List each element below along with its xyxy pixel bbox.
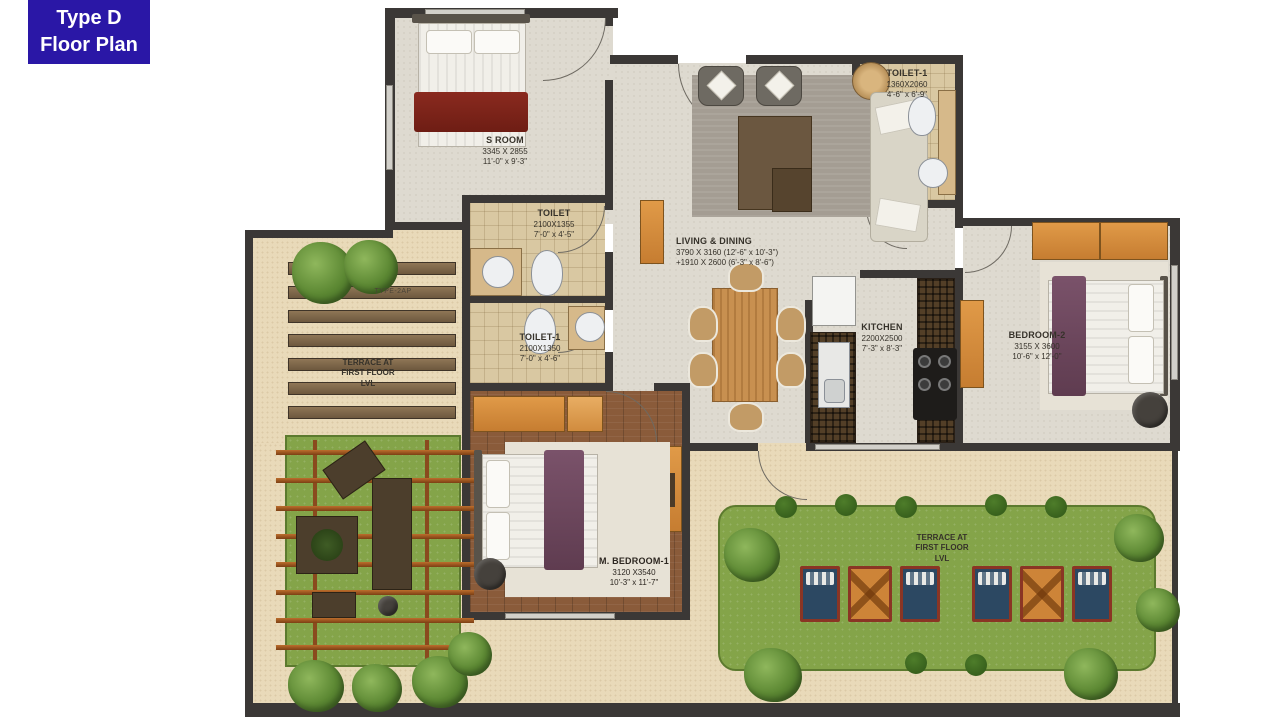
pillow [486, 460, 510, 508]
wall [462, 383, 610, 391]
terrace-label-line: LVL [316, 379, 420, 389]
pergola-beam [276, 590, 474, 595]
wall [955, 55, 963, 218]
tree [724, 528, 780, 582]
pergola-beam [276, 618, 474, 623]
plan-title-line2: Floor Plan [28, 32, 150, 59]
toilet1-mid-label: TOILET-1 2100X1350 7'-0" x 4'-6" [492, 332, 588, 364]
terrace-label-line: TERRACE AT [316, 358, 420, 368]
living-dining-label: LIVING & DINING 3790 X 3160 (12'-6" x 10… [676, 236, 856, 268]
outdoor-bench [312, 592, 356, 618]
window [505, 613, 615, 619]
stove-burner [938, 378, 951, 391]
seat-cushion [1078, 572, 1106, 585]
toilet-wc [908, 96, 936, 136]
corridor-cabinet [640, 200, 664, 264]
pillow [486, 512, 510, 560]
tree [1114, 514, 1164, 562]
tree [352, 664, 402, 712]
wall [605, 252, 613, 310]
room-dims-ft: 7'-3" x 8'-3" [842, 344, 922, 354]
toilet-basin [918, 158, 948, 188]
wall [462, 195, 470, 391]
bedroom2-wardrobe [1032, 222, 1168, 260]
plan-title-line1: Type D [28, 5, 150, 32]
terrace-label-line: LVL [894, 554, 990, 564]
room-dims-mm: 3155 X 3600 [982, 342, 1092, 352]
tree [1136, 588, 1180, 632]
room-dims-ft: 7'-0" x 4'-6" [492, 354, 588, 364]
armchair-cushion [765, 71, 795, 101]
window [386, 85, 393, 170]
terrace-seat-blue [800, 566, 840, 622]
toilet-wc [531, 250, 563, 296]
m-bedroom1-label: M. BEDROOM-1 3120 X3540 10'-3" x 11'-7" [572, 556, 696, 588]
sink-basin [824, 379, 845, 403]
pillow [474, 30, 520, 54]
pergola-rail [425, 440, 429, 666]
room-name: M. BEDROOM-1 [572, 556, 696, 568]
wall [610, 55, 678, 64]
bush [835, 494, 857, 516]
window [815, 444, 940, 450]
room-dims-mm: 3345 X 2855 [445, 147, 565, 157]
room-dims-mm: 2200X2500 [842, 334, 922, 344]
bed-headboard [474, 450, 482, 570]
terrace-label-line: FIRST FLOOR [894, 543, 990, 553]
bedroom2-label: BEDROOM-2 3155 X 3600 10'-6" x 12'-0" [982, 330, 1092, 362]
tree [448, 632, 492, 676]
room-name: TOILET-1 [492, 332, 588, 344]
wall [462, 195, 613, 203]
room-name: LIVING & DINING [676, 236, 856, 248]
bed-headboard [412, 14, 530, 23]
tree [288, 660, 344, 712]
room-dims-ft: 11'-0" x 9'-3" [445, 157, 565, 167]
dining-chair [776, 352, 806, 388]
room-dims-ft: 10'-6" x 12'-0" [982, 352, 1092, 362]
terrace-seat-orange [1020, 566, 1064, 622]
room-dims-ft: 7'-0" x 4'-5" [506, 230, 602, 240]
bush [895, 496, 917, 518]
terrace-label-line: FIRST FLOOR [316, 368, 420, 378]
terrace-seat-orange [848, 566, 892, 622]
wall [605, 195, 613, 210]
wall [245, 230, 253, 713]
stool [474, 558, 506, 590]
pergola-beam [276, 645, 474, 650]
toilet1-top-label: TOILET-1 1360X2060 4'-6" x 6'-9" [864, 68, 950, 100]
type-code-label: TYPE-2AP [348, 288, 438, 295]
s-room-label: S ROOM 3345 X 2855 11'-0" x 9'-3" [445, 135, 565, 167]
armchair-cushion [707, 71, 737, 101]
coffee-table-lower [772, 168, 812, 212]
stove-burner [938, 355, 951, 368]
outdoor-side-table [378, 596, 398, 616]
plan-title-badge: Type D Floor Plan [28, 0, 150, 64]
tree [744, 648, 802, 702]
sofa-pillow [875, 198, 921, 233]
toilet-mid-label: TOILET 2100X1355 7'-0" x 4'-5" [506, 208, 602, 240]
wall [690, 443, 758, 451]
bush [905, 652, 927, 674]
terrace-plank [288, 406, 456, 419]
dining-table [712, 288, 778, 402]
terrace-plank [288, 334, 456, 347]
terrace-left-label: TERRACE AT FIRST FLOOR LVL [316, 358, 420, 389]
stove-burner [918, 355, 931, 368]
terrace-seat-blue [972, 566, 1012, 622]
room-dims-mm: 3120 X3540 [572, 568, 696, 578]
stool [1132, 392, 1168, 428]
dining-chair [688, 352, 718, 388]
wall [746, 55, 860, 64]
dining-chair [688, 306, 718, 342]
wall [955, 218, 963, 228]
bush [985, 494, 1007, 516]
room-dims-ft: 4'-6" x 6'-9" [864, 90, 950, 100]
room-name: TOILET-1 [864, 68, 950, 80]
wall [462, 383, 470, 620]
armchair [756, 66, 802, 106]
dining-chair [776, 306, 806, 342]
room-dims-mm: 1360X2060 [864, 80, 950, 90]
bush [965, 654, 987, 676]
wall [955, 443, 1180, 451]
toilet-basin [482, 256, 514, 288]
terrace-right-label: TERRACE AT FIRST FLOOR LVL [894, 533, 990, 564]
armchair [698, 66, 744, 106]
wall [605, 18, 613, 26]
outdoor-sofa [372, 478, 412, 590]
seat-cushion [906, 572, 934, 585]
wall [385, 222, 470, 230]
room-dims-mm: 2100X1355 [506, 220, 602, 230]
wall [462, 296, 613, 303]
bed-blanket [544, 450, 584, 570]
room-name: KITCHEN [842, 322, 922, 334]
stove-burner [918, 378, 931, 391]
room-dims-ft: +1910 X 2600 (6'-3" x 8'-6") [676, 258, 856, 268]
wall [245, 230, 393, 238]
wall [605, 80, 613, 195]
fridge [812, 276, 856, 326]
seat-cushion [978, 572, 1006, 585]
pillow [1128, 336, 1154, 384]
outdoor-table [296, 516, 358, 574]
room-dims-mm: 3790 X 3160 (12'-6" x 10'-3") [676, 248, 856, 258]
window [1171, 265, 1178, 380]
wall [1172, 451, 1178, 705]
terrace-plank [288, 310, 456, 323]
floor-plan-canvas: Type D Floor Plan [0, 0, 1280, 720]
bush [775, 496, 797, 518]
wardrobe-divider [1099, 223, 1101, 259]
bed-blanket [414, 92, 528, 132]
room-dims-mm: 2100X1350 [492, 344, 588, 354]
pillow [1128, 284, 1154, 332]
room-name: TOILET [506, 208, 602, 220]
table-plant [311, 529, 343, 561]
bedroom2-side-wardrobe [960, 300, 984, 388]
kitchen-label: KITCHEN 2200X2500 7'-3" x 8'-3" [842, 322, 922, 354]
terrace-seat-blue [1072, 566, 1112, 622]
room-dims-ft: 10'-3" x 11'-7" [572, 578, 696, 588]
tree [344, 240, 398, 294]
m-bedroom-wardrobe [473, 396, 565, 432]
room-name: S ROOM [445, 135, 565, 147]
terrace-seat-blue [900, 566, 940, 622]
pillow [426, 30, 472, 54]
bush [1045, 496, 1067, 518]
seat-cushion [806, 572, 834, 585]
m-bedroom-dresser [567, 396, 603, 432]
tree [1064, 648, 1118, 700]
dining-chair [728, 402, 764, 432]
room-name: BEDROOM-2 [982, 330, 1092, 342]
terrace-label-line: TERRACE AT [894, 533, 990, 543]
gas-stove [913, 348, 957, 420]
wall [860, 270, 963, 278]
